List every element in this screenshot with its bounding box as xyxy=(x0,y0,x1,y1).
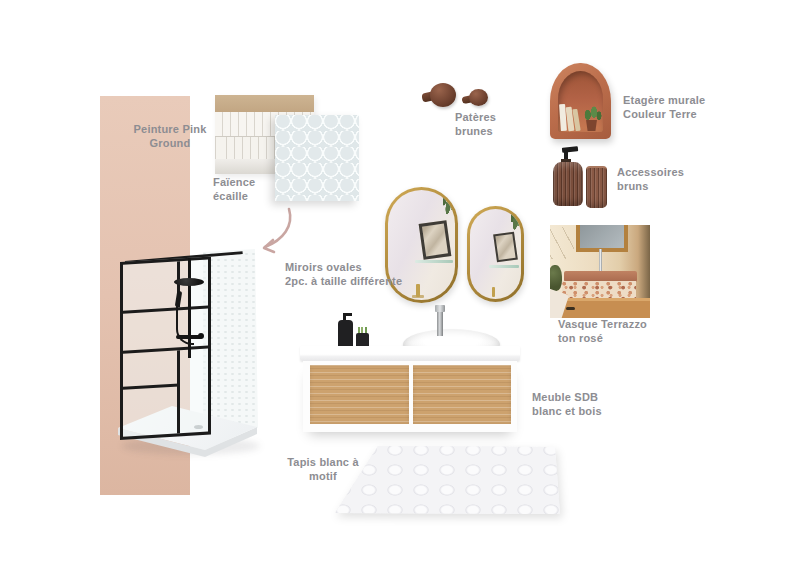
mirror-glass-shelf-reflection xyxy=(415,260,453,263)
vanity-drawer-left xyxy=(310,365,409,424)
label-rug: Tapis blanc à motif xyxy=(281,456,365,483)
dispenser-bottle xyxy=(553,162,583,206)
label-mirrors: Miroirs ovales 2pc. à taille différente xyxy=(285,261,402,288)
label-accessories-line2: bruns xyxy=(617,180,684,194)
mirror-glass-shelf-reflection xyxy=(489,265,519,268)
label-faience-line1: Faïence xyxy=(213,176,255,190)
label-vanity-line1: Meuble SDB xyxy=(532,391,602,405)
terrazzo-basin-photo xyxy=(550,225,650,318)
label-shelf: Etagère murale Couleur Terre xyxy=(623,94,705,121)
mirror-reflection xyxy=(470,209,521,299)
label-vanity-line2: blanc et bois xyxy=(532,405,602,419)
shower-hose xyxy=(176,305,194,345)
label-shelf-line1: Etagère murale xyxy=(623,94,705,108)
label-mirrors-line2: 2pc. à taille différente xyxy=(285,275,402,289)
moodboard-canvas: Peinture Pink Ground Faïence écaille xyxy=(0,0,797,563)
vanity-drawer-right xyxy=(413,365,511,424)
label-paint-line2: Ground xyxy=(120,137,220,151)
label-hooks-line2: brunes xyxy=(455,125,496,139)
label-shelf-line2: Couleur Terre xyxy=(623,108,705,122)
mirror-tap-reflection xyxy=(416,284,420,297)
label-rug-line2: motif xyxy=(281,470,365,484)
tumbler-brown xyxy=(586,166,607,208)
label-vasque-line2: ton rosé xyxy=(558,332,647,346)
photo-cabinet-handle xyxy=(566,307,575,310)
shelf-plant-pot xyxy=(585,120,598,131)
shower-rain-head xyxy=(174,278,204,286)
vanity-cabinet xyxy=(303,361,517,432)
label-paint-line1: Peinture Pink xyxy=(120,123,220,137)
label-paint: Peinture Pink Ground xyxy=(120,123,220,150)
photo-green-vase xyxy=(550,265,562,291)
black-dispenser-spout xyxy=(343,313,352,316)
wall-hook-large xyxy=(422,83,460,109)
label-rug-line1: Tapis blanc à xyxy=(281,456,365,470)
label-accessories-line1: Accessoires xyxy=(617,166,684,180)
shower-frame-rail xyxy=(123,306,208,314)
shower-frame-rail xyxy=(123,346,208,354)
tile-sample-fishscale xyxy=(275,115,359,201)
vanity-faucet-head xyxy=(435,305,445,312)
mirror-tap-reflection xyxy=(492,287,495,297)
photo-wood-mirror xyxy=(576,225,628,252)
shower-frame-rail xyxy=(123,383,179,389)
wall-hook-small xyxy=(462,89,492,108)
label-vanity: Meuble SDB blanc et bois xyxy=(532,391,602,418)
vanity-countertop xyxy=(300,346,520,361)
photo-branch-decor xyxy=(550,227,574,259)
label-vasque: Vasque Terrazzo ton rosé xyxy=(558,318,647,345)
wall-hook-disc xyxy=(430,83,456,107)
wall-shelf-terracotta xyxy=(550,63,611,139)
label-accessories: Accessoires bruns xyxy=(617,166,684,193)
shower-enclosure xyxy=(110,245,272,460)
label-faience-line2: écaille xyxy=(213,190,255,204)
wall-hook-disc xyxy=(469,89,488,106)
label-faience: Faïence écaille xyxy=(213,176,255,203)
label-hooks: Patères brunes xyxy=(455,111,496,138)
label-mirrors-line1: Miroirs ovales xyxy=(285,261,402,275)
shower-frame-rail xyxy=(177,350,180,433)
label-hooks-line1: Patères xyxy=(455,111,496,125)
oval-mirror-small xyxy=(467,206,524,302)
tile-kitkat-wall xyxy=(215,95,314,112)
label-vasque-line1: Vasque Terrazzo xyxy=(558,318,647,332)
soap-dispenser-brown xyxy=(553,146,584,206)
wall-shelf-niche xyxy=(558,71,603,132)
shower-valve-knob xyxy=(198,333,204,339)
mirror-art-frame-reflection xyxy=(419,220,452,260)
mirror-art-frame-reflection xyxy=(493,232,518,263)
